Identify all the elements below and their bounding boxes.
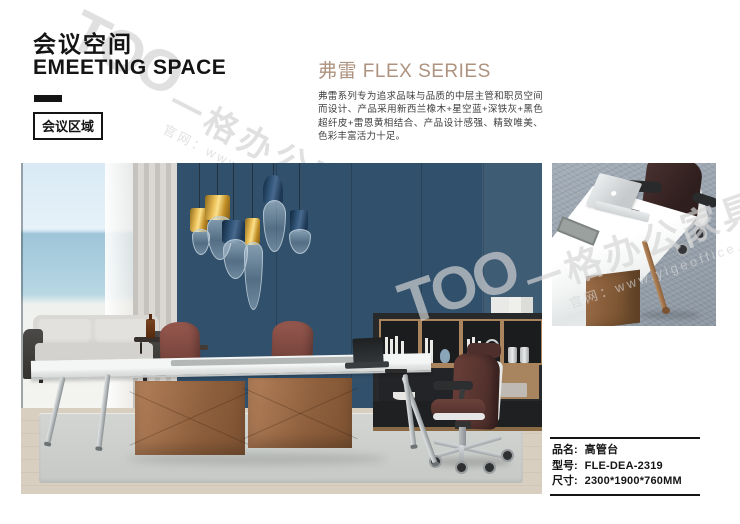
chair-caster — [694, 227, 707, 240]
series-description: 弗雷系列专为追求品味与品质的中层主管和职员空间而设计、产品采用新西兰橡木+星空蓝… — [318, 90, 543, 143]
desk-shadow — [640, 311, 700, 319]
table-pedestal — [248, 378, 352, 448]
product-size-value: 2300*1900*760MM — [585, 474, 682, 490]
chair-caster — [676, 243, 689, 256]
table-pedestal — [135, 381, 245, 455]
series-title: 弗雷 FLEX SERIES — [318, 56, 491, 83]
product-size-label: 尺寸: — [552, 474, 578, 490]
desk-pedestal — [586, 270, 640, 326]
product-size-row: 尺寸: 2300*1900*760MM — [552, 474, 700, 490]
executive-desk-photo — [552, 163, 716, 326]
bottle — [146, 319, 155, 338]
page-title-english: EMEETING SPACE — [33, 56, 226, 80]
section-tag: 会议区域 — [33, 112, 103, 140]
product-model-row: 型号: FLE-DEA-2319 — [552, 459, 700, 475]
desk-foot — [662, 307, 670, 314]
product-model-label: 型号: — [552, 459, 578, 475]
product-info-box: 品名: 高管台 型号: FLE-DEA-2319 尺寸: 2300*1900*7… — [550, 437, 700, 496]
cable-channel — [171, 357, 361, 367]
laptop-dark — [345, 338, 395, 378]
title-dash-divider — [34, 95, 62, 102]
product-name-value: 高管台 — [585, 443, 619, 459]
page-title-chinese: 会议空间 — [33, 25, 133, 59]
conference-room-photo — [21, 163, 542, 494]
product-name-row: 品名: 高管台 — [552, 443, 700, 459]
executive-chair — [425, 341, 517, 469]
product-model-value: FLE-DEA-2319 — [585, 459, 663, 475]
product-name-label: 品名: — [552, 443, 578, 459]
